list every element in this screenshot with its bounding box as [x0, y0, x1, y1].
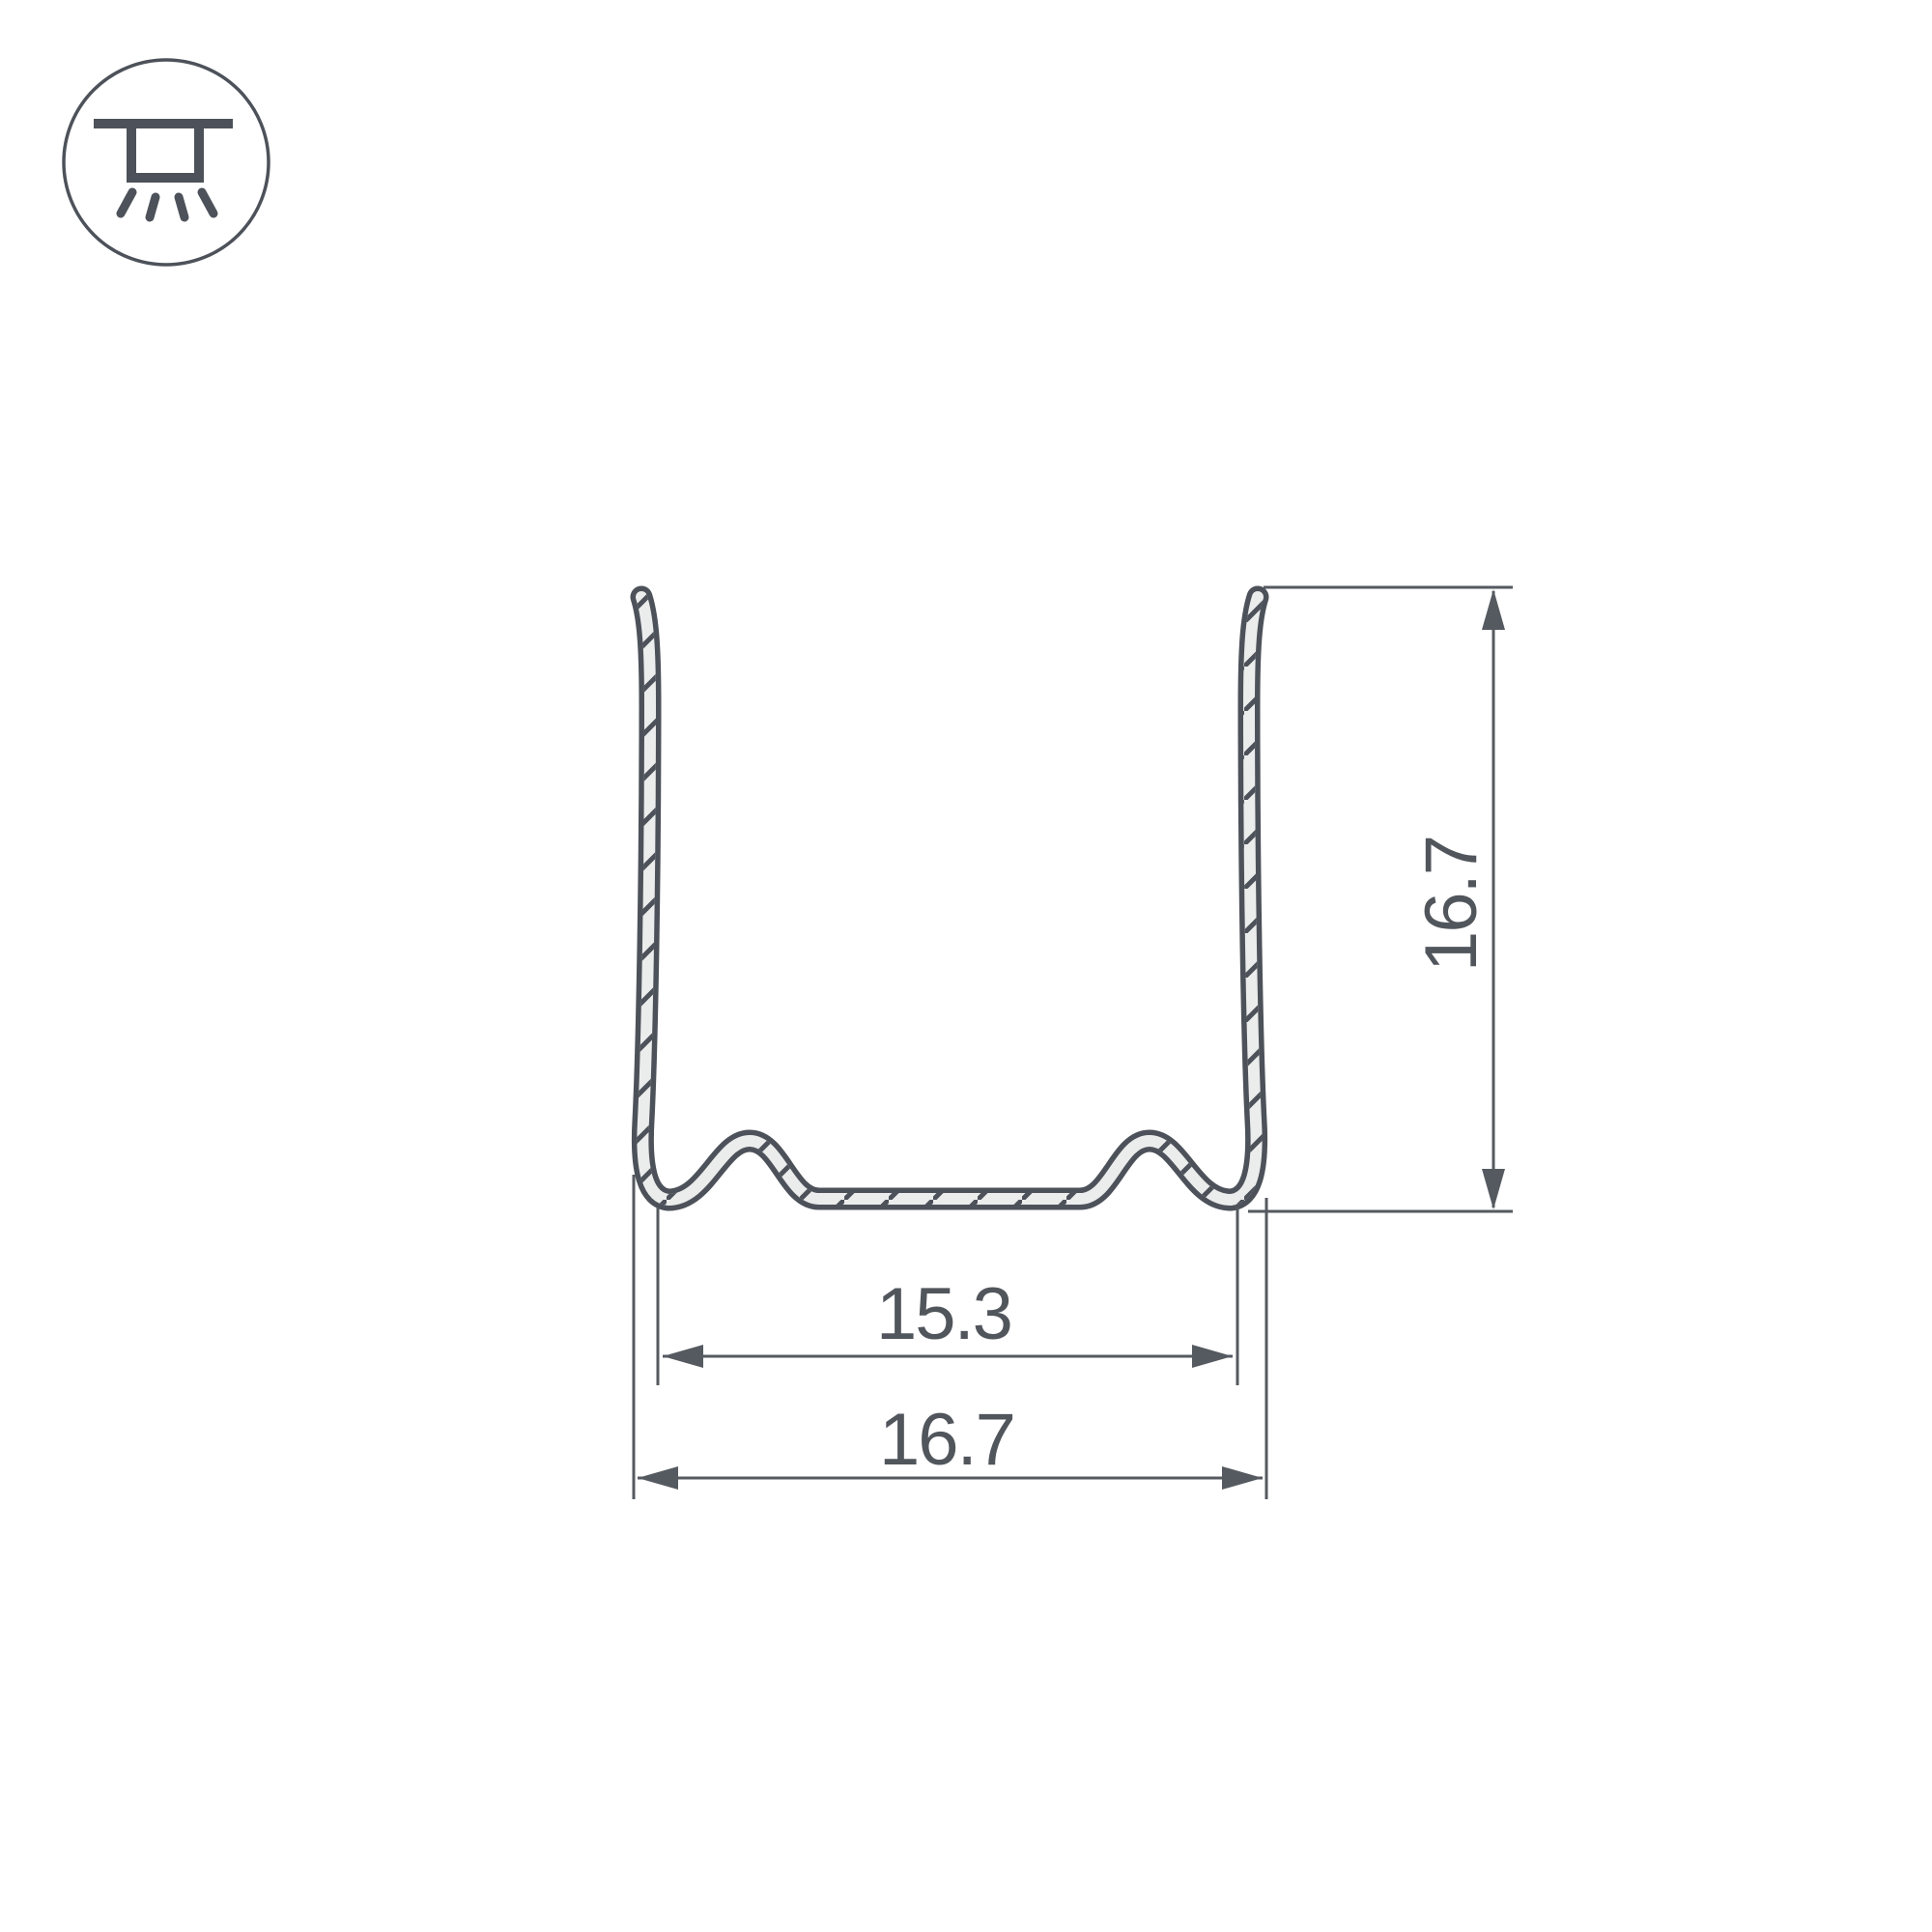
fixture-box: [131, 126, 199, 178]
profile-core: [641, 597, 1258, 1200]
height-value: 16.7: [1410, 837, 1492, 972]
light-ray: [121, 192, 132, 213]
inner-width-value: 15.3: [876, 1273, 1011, 1355]
arrowhead-right: [1192, 1345, 1233, 1368]
light-ray: [202, 192, 213, 213]
outer-width-value: 16.7: [879, 1399, 1014, 1481]
profile-outline: [641, 597, 1258, 1200]
light-ray: [150, 197, 156, 217]
profile-cross-section: [641, 597, 1258, 1200]
arrowhead-top: [1482, 589, 1505, 630]
light-rays: [121, 192, 213, 217]
arrowhead-right: [1222, 1466, 1263, 1490]
ceiling-light-icon: [64, 60, 269, 265]
arrowhead-left: [663, 1345, 703, 1368]
technical-drawing-canvas: 15.3 16.7 16.7: [0, 0, 1932, 1932]
icon-circle: [64, 60, 269, 265]
arrowhead-bottom: [1482, 1169, 1505, 1209]
light-ray: [179, 197, 185, 217]
profile-hatching: [641, 597, 1258, 1200]
arrowhead-left: [638, 1466, 678, 1490]
